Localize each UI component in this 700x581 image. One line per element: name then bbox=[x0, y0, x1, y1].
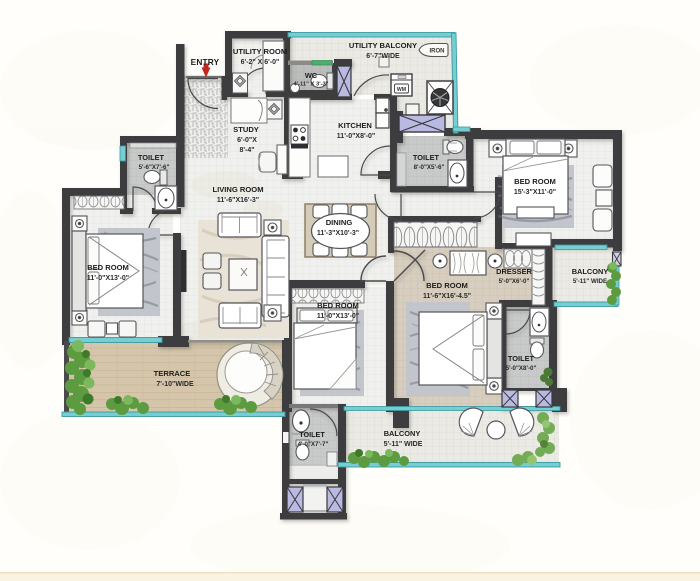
svg-text:DINING: DINING bbox=[326, 218, 353, 227]
svg-text:ENTRY: ENTRY bbox=[191, 57, 220, 67]
svg-text:KITCHEN: KITCHEN bbox=[338, 121, 372, 130]
svg-text:DRESSER: DRESSER bbox=[496, 267, 532, 276]
svg-text:STUDY: STUDY bbox=[233, 125, 259, 134]
svg-text:5'-6"X7'-6": 5'-6"X7'-6" bbox=[139, 164, 170, 171]
svg-text:11'-0"X8'-0": 11'-0"X8'-0" bbox=[337, 133, 375, 140]
svg-text:BED ROOM: BED ROOM bbox=[426, 281, 468, 290]
svg-text:TERRACE: TERRACE bbox=[154, 369, 191, 378]
svg-text:TOILET: TOILET bbox=[299, 430, 325, 439]
svg-text:11'-0"X13'-0": 11'-0"X13'-0" bbox=[317, 313, 359, 320]
svg-text:IRON: IRON bbox=[430, 49, 445, 55]
svg-text:8'-0"X5'-6": 8'-0"X5'-6" bbox=[414, 164, 445, 171]
svg-text:8'-4": 8'-4" bbox=[239, 147, 254, 154]
svg-text:15'-3"X11'-0": 15'-3"X11'-0" bbox=[514, 189, 556, 196]
svg-text:5'-11" WIDE: 5'-11" WIDE bbox=[573, 278, 607, 285]
svg-text:BED ROOM: BED ROOM bbox=[87, 263, 129, 272]
svg-text:WM: WM bbox=[397, 87, 406, 93]
svg-text:4'-0"X7'-7": 4'-0"X7'-7" bbox=[298, 441, 329, 448]
svg-text:6'-0"X: 6'-0"X bbox=[237, 137, 257, 144]
svg-text:TOILET: TOILET bbox=[508, 354, 535, 363]
svg-text:5'-0"X6'-0": 5'-0"X6'-0" bbox=[499, 278, 530, 285]
svg-text:BALCONY: BALCONY bbox=[384, 429, 421, 438]
svg-text:UTILITY ROOM: UTILITY ROOM bbox=[233, 47, 287, 56]
svg-text:11'-6"X16'-3": 11'-6"X16'-3" bbox=[217, 197, 259, 204]
svg-text:7'-10"WIDE: 7'-10"WIDE bbox=[156, 381, 194, 388]
svg-text:TOILET: TOILET bbox=[413, 153, 440, 162]
svg-text:6'-7"WIDE: 6'-7"WIDE bbox=[366, 53, 400, 60]
svg-text:5'-0"X8'-0": 5'-0"X8'-0" bbox=[506, 365, 537, 372]
svg-text:WC: WC bbox=[305, 71, 318, 80]
svg-text:4'-11" X 3'-3": 4'-11" X 3'-3" bbox=[293, 82, 328, 88]
svg-text:TOILET: TOILET bbox=[138, 153, 165, 162]
svg-text:BED ROOM: BED ROOM bbox=[317, 301, 359, 310]
svg-text:6'-2" X 6'-0": 6'-2" X 6'-0" bbox=[241, 59, 280, 66]
svg-text:BALCONY: BALCONY bbox=[572, 267, 609, 276]
svg-text:BED ROOM: BED ROOM bbox=[514, 177, 556, 186]
svg-text:11'-6"X16'-4.5": 11'-6"X16'-4.5" bbox=[423, 293, 471, 300]
svg-text:11'-0"X13'-0": 11'-0"X13'-0" bbox=[87, 275, 129, 282]
svg-text:11'-3"X10'-3": 11'-3"X10'-3" bbox=[317, 230, 359, 237]
svg-text:LIVING ROOM: LIVING ROOM bbox=[212, 185, 263, 194]
svg-text:5'-11" WIDE: 5'-11" WIDE bbox=[384, 441, 423, 448]
svg-text:UTILITY BALCONY: UTILITY BALCONY bbox=[349, 41, 417, 50]
